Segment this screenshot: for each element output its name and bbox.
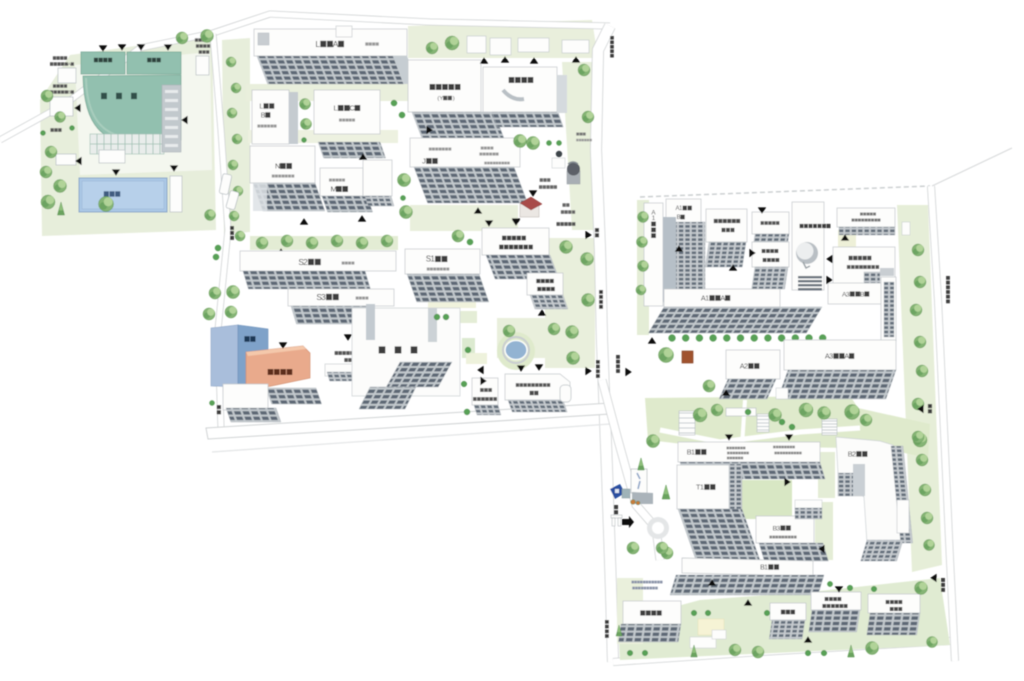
svg-text:A: A — [68, 62, 71, 67]
svg-text:3: 3 — [846, 291, 850, 298]
svg-text:B: B — [68, 90, 71, 95]
svg-text:1: 1 — [700, 482, 704, 491]
svg-text:A: A — [844, 351, 849, 360]
svg-text:1: 1 — [691, 447, 695, 456]
svg-text:2: 2 — [744, 361, 748, 370]
svg-text:3: 3 — [829, 351, 833, 360]
svg-text:A: A — [720, 293, 725, 302]
svg-text:): ) — [453, 96, 455, 102]
svg-text:A: A — [333, 40, 339, 49]
svg-text:B: B — [677, 215, 681, 221]
svg-text:1: 1 — [430, 255, 435, 264]
svg-text:B: B — [860, 291, 865, 298]
svg-text:L: L — [315, 40, 320, 49]
svg-text:N: N — [275, 162, 281, 171]
svg-text:Y: Y — [439, 96, 443, 102]
svg-text:L: L — [333, 104, 338, 113]
svg-text:M: M — [330, 185, 336, 194]
svg-text:3: 3 — [776, 525, 780, 532]
svg-text:1: 1 — [764, 564, 768, 571]
svg-text:1: 1 — [652, 215, 656, 222]
svg-text:J: J — [422, 157, 426, 166]
svg-text:B: B — [261, 112, 266, 119]
svg-text:3: 3 — [321, 293, 326, 302]
svg-text:L: L — [259, 103, 263, 110]
svg-text:1: 1 — [705, 293, 709, 302]
svg-text:2: 2 — [852, 449, 856, 458]
svg-text:2: 2 — [303, 258, 308, 267]
svg-text:C: C — [349, 104, 355, 113]
